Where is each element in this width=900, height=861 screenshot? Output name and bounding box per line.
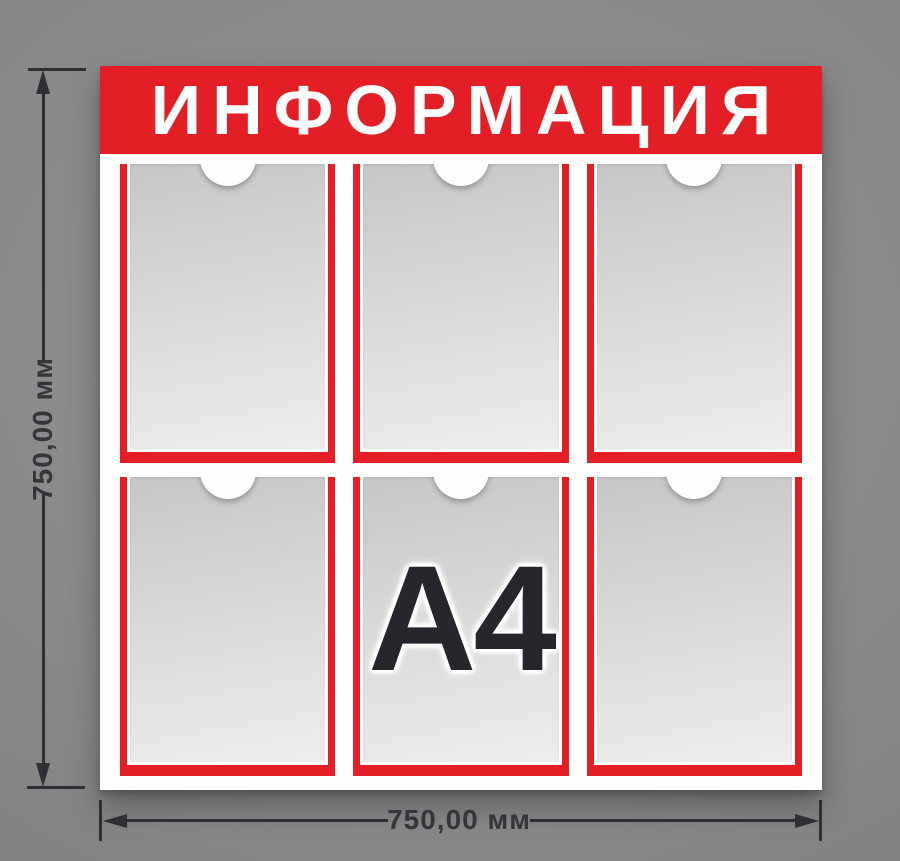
- dimension-extension-tick: [99, 800, 102, 841]
- information-stand-board: ИНФОРМАЦИЯ: [100, 66, 822, 790]
- pocket-frame-right: [328, 477, 335, 776]
- board-title: ИНФОРМАЦИЯ: [140, 75, 782, 145]
- pocket-frame-left: [120, 477, 127, 776]
- pocket-panel: [360, 164, 561, 452]
- dimension-arrow-left-icon: [103, 814, 127, 828]
- pocket-sheet-area: [597, 164, 792, 449]
- pocket-frame-bottom: [587, 452, 802, 463]
- pocket-frame-right: [795, 164, 802, 463]
- pocket-frame-bottom: [353, 452, 568, 463]
- a4-pocket: [587, 164, 802, 463]
- pocket-frame-right: [328, 164, 335, 463]
- pocket-frame-bottom: [120, 765, 335, 776]
- pocket-panel: A4: [360, 477, 561, 765]
- height-dimension-label: 750,00 мм: [27, 357, 59, 501]
- pocket-panel: [127, 477, 328, 765]
- pocket-frame-bottom: [587, 765, 802, 776]
- pocket-sheet-area: [130, 477, 325, 762]
- board-header: ИНФОРМАЦИЯ: [100, 66, 822, 154]
- pocket-frame-bottom: [353, 765, 568, 776]
- pocket-panel: [127, 164, 328, 452]
- dimension-extension-tick: [27, 786, 85, 789]
- a4-pocket: A4: [353, 477, 568, 776]
- pocket-frame-left: [353, 164, 360, 463]
- dimension-line: [42, 88, 45, 360]
- a4-pocket: [587, 477, 802, 776]
- pocket-size-label: A4: [368, 543, 554, 693]
- dimension-arrow-down-icon: [36, 763, 50, 787]
- pocket-sheet-area: [130, 164, 325, 449]
- pocket-panel: [594, 477, 795, 765]
- pocket-frame-right: [795, 477, 802, 776]
- dimension-line: [530, 819, 795, 822]
- pocket-frame-left: [353, 477, 360, 776]
- pocket-frame-left: [120, 164, 127, 463]
- pocket-frame-left: [587, 164, 594, 463]
- pocket-sheet-area: [363, 164, 558, 449]
- pocket-frame-left: [587, 477, 594, 776]
- pocket-frame-bottom: [120, 452, 335, 463]
- width-dimension-label: 750,00 мм: [387, 804, 531, 836]
- pocket-panel: [594, 164, 795, 452]
- dimension-line: [125, 819, 388, 822]
- dimension-extension-tick: [819, 800, 822, 841]
- pocket-frame-right: [562, 477, 569, 776]
- pocket-sheet-area: [597, 477, 792, 762]
- pocket-frame-right: [562, 164, 569, 463]
- a4-pocket: [120, 477, 335, 776]
- dimension-arrow-right-icon: [795, 814, 819, 828]
- a4-pocket: [120, 164, 335, 463]
- a4-pocket: [353, 164, 568, 463]
- pocket-grid: A4: [120, 164, 802, 776]
- dimension-line: [42, 494, 45, 764]
- product-image: ИНФОРМАЦИЯ: [0, 0, 900, 861]
